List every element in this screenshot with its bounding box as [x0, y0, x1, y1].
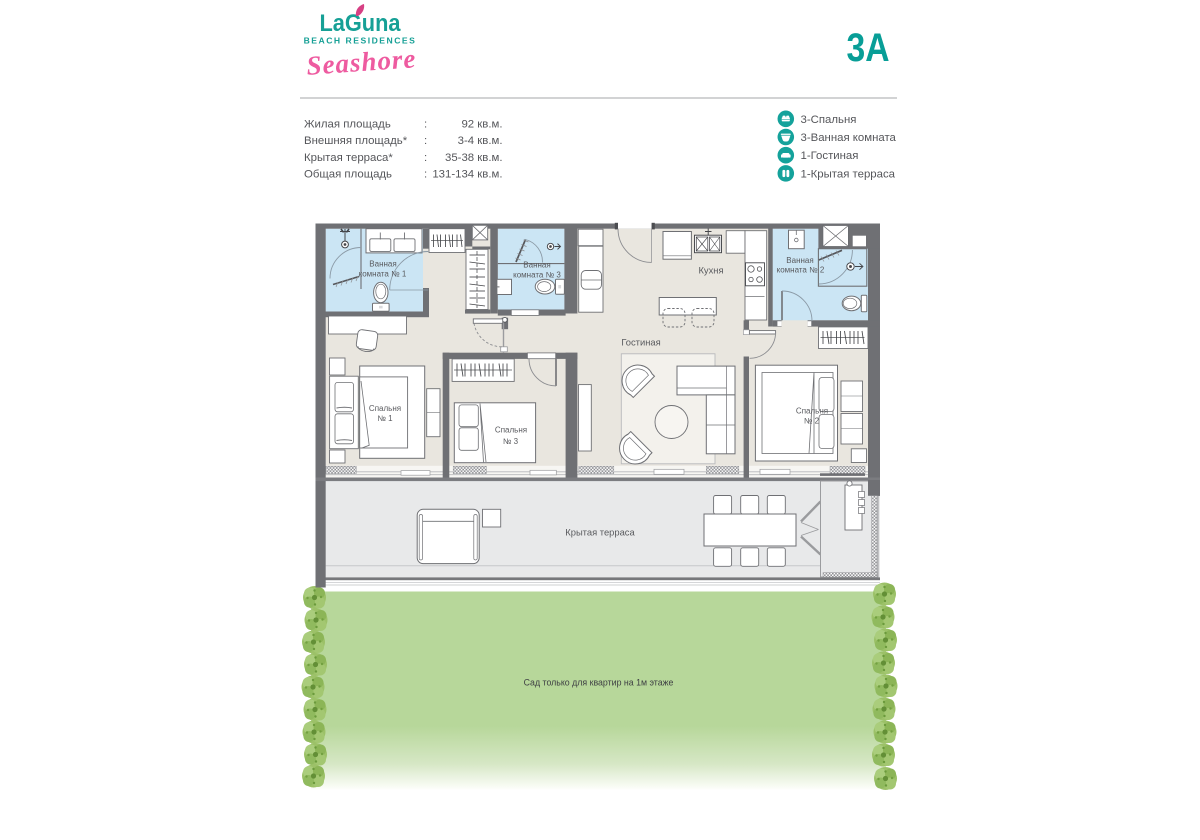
svg-text:3-Спальня: 3-Спальня — [801, 114, 857, 126]
svg-text:Seashore: Seashore — [305, 43, 417, 81]
svg-text:Спальня: Спальня — [369, 404, 401, 413]
svg-text:Гостиная: Гостиная — [621, 337, 660, 348]
svg-text:Сад только для квартир на 1м э: Сад только для квартир на 1м этаже — [524, 678, 674, 688]
svg-text:Крытая терраса: Крытая терраса — [565, 527, 635, 538]
svg-text:Крытая терраса*: Крытая терраса* — [304, 152, 393, 164]
svg-text:Ванная: Ванная — [369, 259, 396, 268]
svg-text:35-38 кв.м.: 35-38 кв.м. — [445, 152, 503, 164]
svg-text:3-4 кв.м.: 3-4 кв.м. — [458, 135, 503, 147]
svg-text::: : — [424, 152, 427, 164]
svg-text:Ванная: Ванная — [523, 261, 550, 270]
svg-text::: : — [424, 135, 427, 147]
svg-text::: : — [424, 119, 427, 131]
svg-text::: : — [424, 168, 427, 180]
svg-text:Кухня: Кухня — [698, 265, 723, 276]
svg-text:1-Крытая терраса: 1-Крытая терраса — [801, 168, 896, 180]
svg-text:комната № 1: комната № 1 — [359, 270, 407, 279]
svg-text:Спальня: Спальня — [495, 425, 527, 434]
svg-text:№ 2: № 2 — [804, 417, 820, 426]
svg-text:№ 3: № 3 — [503, 437, 519, 446]
svg-text:Общая площадь: Общая площадь — [304, 168, 392, 180]
svg-text:Внешняя площадь*: Внешняя площадь* — [304, 135, 408, 147]
svg-text:92 кв.м.: 92 кв.м. — [461, 119, 502, 131]
svg-text:131-134 кв.м.: 131-134 кв.м. — [432, 168, 502, 180]
svg-text:Жилая площадь: Жилая площадь — [304, 119, 391, 131]
svg-text:Спальня: Спальня — [796, 407, 828, 416]
svg-text:комната № 3: комната № 3 — [513, 271, 561, 280]
svg-text:1-Гостиная: 1-Гостиная — [801, 150, 859, 162]
svg-text:Ванная: Ванная — [786, 256, 813, 265]
svg-text:комната № 2: комната № 2 — [777, 266, 825, 275]
svg-text:3-Ванная комната: 3-Ванная комната — [801, 132, 897, 144]
svg-text:3A: 3A — [847, 26, 890, 70]
svg-text:№ 1: № 1 — [377, 414, 393, 423]
